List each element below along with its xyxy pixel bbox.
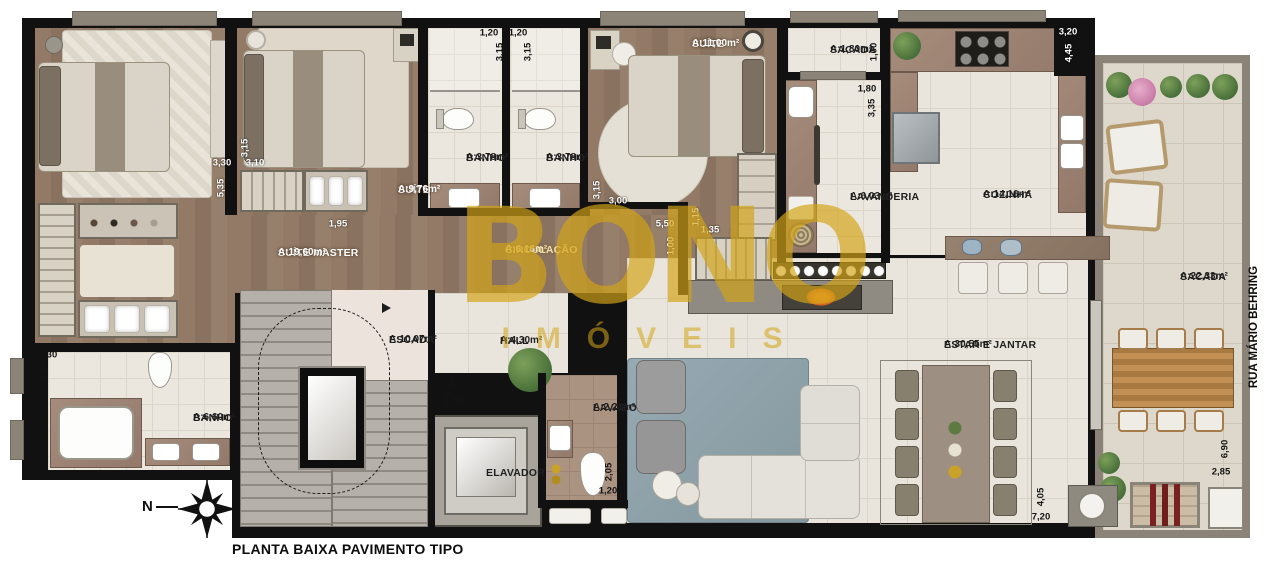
dimension-29-2-85: 2,85: [1212, 467, 1231, 478]
dimension-10-3-00: 3,00: [609, 196, 628, 207]
dimension-18-3-20: 3,20: [1059, 27, 1078, 38]
compass: N: [142, 480, 242, 540]
dimension-0-3-30: 3,30: [213, 158, 232, 169]
dimension-5-1-20: 1,20: [480, 28, 499, 39]
dimension-12-1-00: 1,00: [666, 237, 677, 256]
dimension-7-3-15: 3,15: [495, 43, 506, 62]
dimension-26-4-05: 4,05: [1036, 488, 1047, 507]
compass-rose-icon: [178, 480, 236, 538]
street-label: RUA MÁRIO BEHRING: [1248, 262, 1260, 392]
dimension-4-1-95: 1,95: [329, 219, 348, 230]
dimension-21-2-00: 2,00: [38, 362, 49, 381]
dimension-24-2-05: 2,05: [604, 463, 615, 482]
dimension-27-7-20: 7,20: [1032, 512, 1051, 523]
dimension-16-1-80: 1,80: [858, 84, 877, 95]
dimension-11-5-50: 5,50: [656, 219, 675, 230]
compass-dash: [156, 506, 178, 508]
compass-north-label: N: [142, 498, 153, 515]
dimension-15-1-00: 1,00: [869, 43, 880, 62]
dimension-13-1-15: 1,15: [691, 208, 702, 227]
dimension-9-3-15: 3,15: [592, 181, 603, 200]
dimension-19-4-45: 4,45: [1064, 44, 1075, 63]
floor-plan: SUÍTE MASTERA:19,60m²SUÍTEA:9,76m²BANHOA…: [0, 0, 1280, 564]
stairs-path: [258, 308, 390, 494]
plan-title: PLANTA BAIXA PAVIMENTO TIPO: [232, 541, 464, 557]
dimension-28-6-90: 6,90: [1220, 440, 1231, 459]
dimension-22-2-10: 2,10: [446, 378, 457, 397]
dimension-23-1-95: 1,95: [445, 397, 464, 408]
dimension-1-5-35: 5,35: [216, 179, 227, 198]
dimension-17-3-35: 3,35: [867, 99, 878, 118]
dimension-14-1-35: 1,35: [701, 225, 720, 236]
dimension-20-3-30: 3,30: [39, 350, 58, 361]
dimension-6-1-20: 1,20: [509, 28, 528, 39]
dimension-25-1-20: 1,20: [599, 486, 618, 497]
dimension-2-3-15: 3,15: [240, 139, 251, 158]
dimension-3-3-10: 3,10: [246, 158, 265, 169]
dimension-8-3-15: 3,15: [523, 43, 534, 62]
